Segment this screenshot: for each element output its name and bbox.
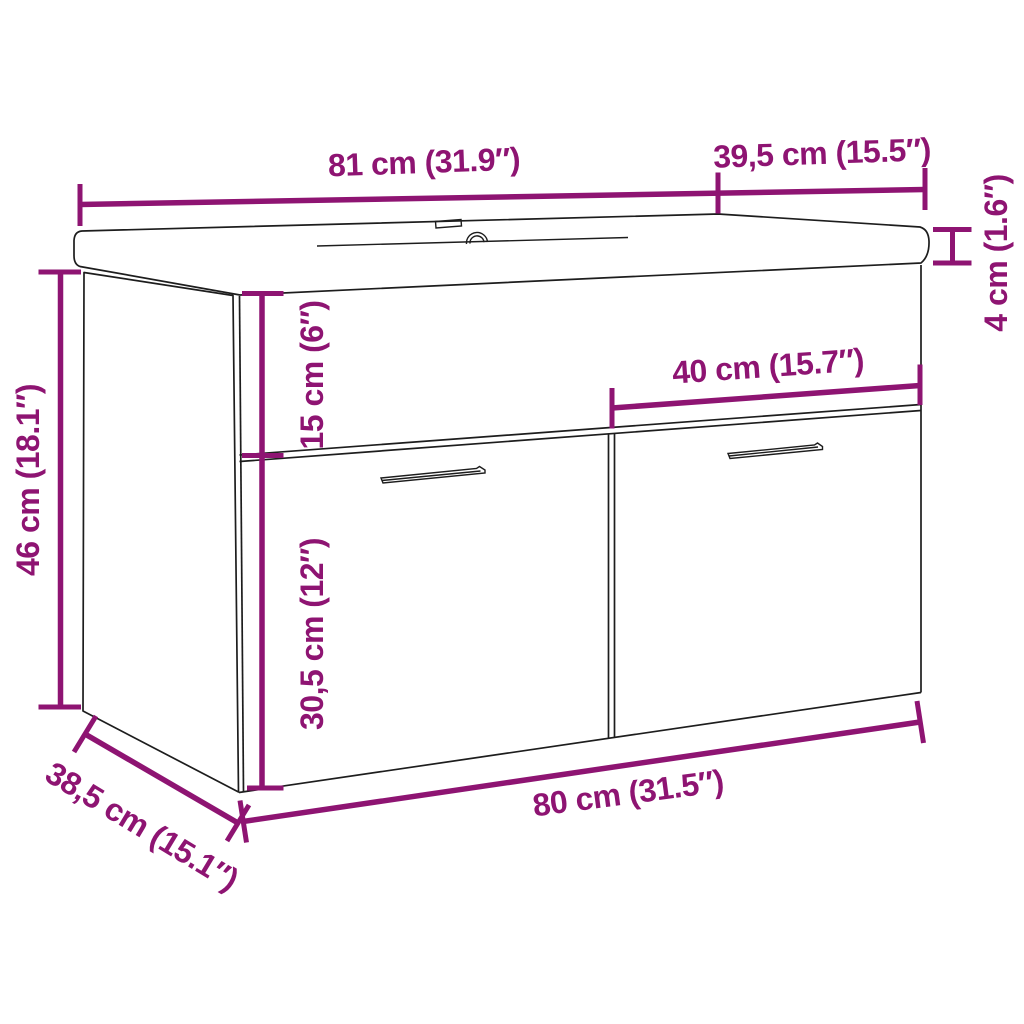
door-width-line (612, 386, 920, 409)
sink-top-outline (74, 214, 929, 295)
cabinet-side-panel (83, 273, 239, 793)
right-door-handle (728, 443, 823, 459)
thickness-marker (933, 230, 972, 264)
label-sink-top-depth: 39,5 cm (15.5″) (713, 131, 932, 175)
cabinet-front-corner-edge (240, 296, 244, 793)
label-door-width: 40 cm (15.7″) (671, 341, 865, 390)
label-sink-top-width: 81 cm (31.9″) (327, 141, 520, 184)
door-gap (609, 434, 615, 739)
diagram-svg: 81 cm (31.9″) 39,5 cm (15.5″) 4 cm (1.6″… (0, 0, 1024, 1024)
label-door-height: 30,5 cm (12″) (294, 538, 330, 730)
label-sink-top-thickness: 4 cm (1.6″) (978, 174, 1014, 331)
dimension-cabinet-width (240, 701, 924, 843)
dimension-panel-and-door-height (242, 294, 284, 789)
label-cabinet-width: 80 cm (31.5″) (530, 763, 725, 824)
left-handle-outline (381, 467, 485, 484)
left-door-handle (381, 467, 485, 484)
cabinet-bottom-edge (239, 693, 921, 793)
divider-rail (240, 405, 922, 462)
dimension-diagram: 81 cm (31.9″) 39,5 cm (15.5″) 4 cm (1.6″… (0, 0, 1024, 1024)
top-dimension-line (80, 190, 925, 205)
dimension-sink-thickness (933, 230, 972, 264)
label-cabinet-height: 46 cm (18.1″) (10, 384, 46, 576)
label-upper-panel-height: 15 cm (6″) (294, 300, 330, 449)
cabinet-body (83, 265, 921, 793)
sink-top (74, 214, 929, 295)
